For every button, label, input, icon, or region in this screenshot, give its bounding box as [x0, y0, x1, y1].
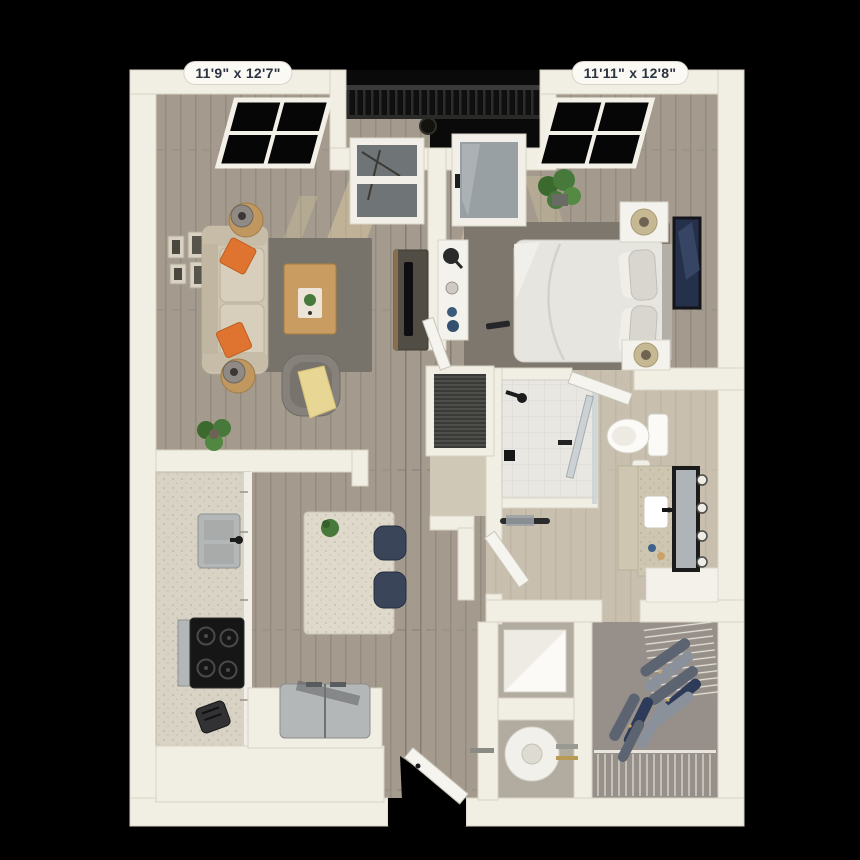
refrigerator	[280, 680, 370, 738]
bedroom-wall-art	[674, 218, 700, 308]
wall-hall-right-lower	[478, 622, 498, 800]
desk	[438, 240, 468, 340]
tv-console	[394, 250, 428, 350]
door-handle	[455, 174, 460, 188]
railing-top-rail	[344, 85, 542, 90]
door-knob	[416, 764, 421, 769]
balcony-railing	[344, 88, 542, 118]
side-table-lamp-bottom	[221, 359, 255, 393]
range-cooktop	[178, 618, 244, 688]
bedroom-dimensions-label: 11'11" x 12'8"	[572, 61, 689, 85]
armchair	[282, 354, 340, 418]
louver-door	[434, 374, 486, 448]
shower-head	[517, 393, 527, 403]
side-table-lamp-top	[229, 203, 263, 237]
wall-bottom-right	[466, 798, 744, 826]
wall-bathroom-bottom-b	[640, 600, 744, 622]
wall-bedroom-bottom-b	[634, 368, 744, 390]
balcony-window-living	[350, 138, 424, 224]
bar-stool	[374, 572, 406, 608]
kitchen-island	[304, 512, 406, 634]
laundry-closet	[504, 630, 566, 692]
hall-nook-tile	[430, 452, 486, 516]
wall-kitchen-half-cap	[352, 450, 368, 486]
floor-plan-render	[0, 0, 860, 860]
vanity-end-cabinet	[646, 568, 718, 602]
wall-kitchen-half	[156, 450, 368, 472]
kitchen-sink	[198, 514, 243, 568]
railing-bottom-rail	[344, 115, 542, 119]
nightstand-bottom	[622, 340, 670, 370]
balcony-glass-door-bedroom	[452, 134, 526, 226]
louvered-hvac-closet	[426, 366, 494, 456]
patio-chair	[420, 118, 436, 134]
nightstand-top	[620, 202, 668, 242]
bar-stool	[374, 526, 406, 560]
wall-left	[130, 70, 156, 826]
floor-plan-stage: 11'9" x 12'7" 11'11" x 12'8"	[0, 0, 860, 860]
entry-opening	[388, 798, 466, 826]
tv-screen	[404, 262, 413, 336]
living-room-dimensions-label: 11'9" x 12'7"	[183, 61, 292, 85]
wall-closet-divider	[574, 622, 592, 798]
oven-door	[178, 620, 190, 686]
pillow	[628, 249, 657, 301]
walk-in-shower	[502, 380, 598, 508]
sofa	[202, 226, 268, 374]
wall-right	[718, 70, 744, 826]
wall-bathroom-bottom-a	[486, 600, 602, 622]
wall-nook-step-b	[458, 528, 474, 600]
wall-closet-partition	[498, 698, 578, 720]
shower-drain	[504, 450, 515, 461]
kitchen-counter-bottom	[156, 746, 384, 802]
wire-shelving-bottom	[594, 754, 716, 796]
coffee-table	[284, 264, 336, 334]
